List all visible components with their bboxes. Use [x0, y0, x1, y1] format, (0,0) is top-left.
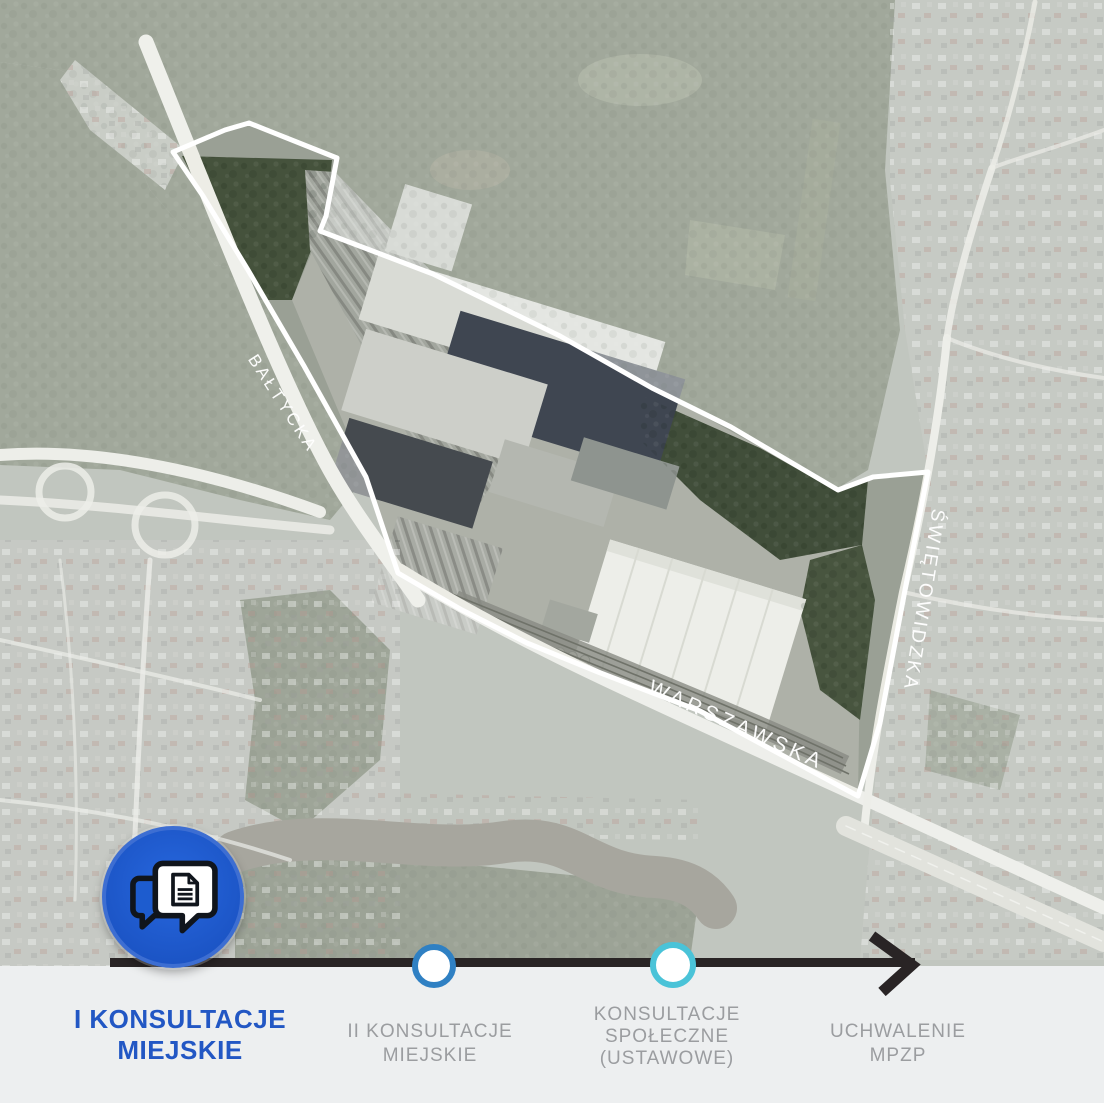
step-3-marker[interactable]	[650, 942, 696, 988]
timeline-arrow-icon	[866, 930, 922, 1001]
step-4-label[interactable]: UCHWALENIE MPZP	[818, 1020, 978, 1068]
satellite-map: BAŁTYCKA WARSZAWSKA ŚWIĘTOWIDZKA	[0, 0, 1104, 966]
step-3-label[interactable]: KONSULTACJE SPOŁECZNE (USTAWOWE)	[582, 1004, 752, 1070]
step-2-marker[interactable]	[412, 944, 456, 988]
infographic-stage: BAŁTYCKA WARSZAWSKA ŚWIĘTOWIDZKA	[0, 0, 1104, 1103]
step-2-label[interactable]: II KONSULTACJE MIEJSKIE	[335, 1020, 525, 1068]
step-1-marker[interactable]	[102, 826, 244, 968]
step-1-label[interactable]: I KONSULTACJE MIEJSKIE	[70, 1004, 290, 1066]
consultation-bubbles-icon	[126, 856, 220, 938]
timeline-line	[110, 958, 915, 967]
